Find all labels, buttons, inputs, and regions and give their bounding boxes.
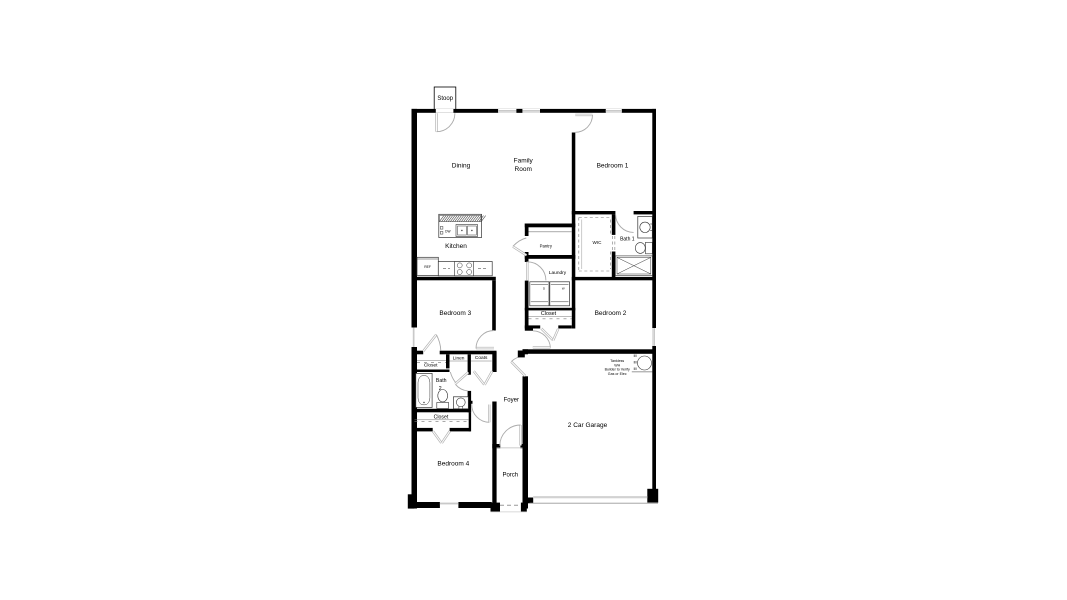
svg-text:Coats: Coats [475,355,488,361]
svg-text:Kitchen: Kitchen [445,243,467,250]
svg-text:Stoop: Stoop [437,96,453,102]
svg-text:2 Car Garage: 2 Car Garage [568,422,608,429]
svg-text:Room: Room [515,166,532,173]
svg-text:Bedroom 3: Bedroom 3 [439,310,471,317]
svg-text:Bedroom 2: Bedroom 2 [595,310,627,317]
svg-text:Closet: Closet [424,363,438,369]
svg-text:Bath 1: Bath 1 [620,237,635,243]
svg-text:Porch: Porch [502,472,518,478]
svg-text:Gas or Elec: Gas or Elec [608,372,627,376]
svg-text:Laundry: Laundry [549,270,567,276]
svg-text:Closet: Closet [541,311,557,317]
svg-text:REF: REF [424,265,431,269]
svg-text:Bath: Bath [436,378,447,384]
svg-text:DW: DW [445,230,450,234]
svg-text:Closet: Closet [434,414,449,420]
svg-text:Bedroom 1: Bedroom 1 [597,163,629,170]
svg-text:Linen: Linen [453,355,465,361]
svg-text:Pantry: Pantry [540,244,553,249]
svg-text:WIC: WIC [593,240,603,245]
svg-text:W: W [562,287,565,291]
svg-text:2: 2 [439,386,442,392]
svg-text:Dining: Dining [452,163,471,170]
svg-text:Family: Family [514,158,534,165]
svg-text:Foyer: Foyer [504,397,519,403]
svg-text:Bedroom 4: Bedroom 4 [437,460,469,467]
svg-text:D: D [543,287,545,291]
